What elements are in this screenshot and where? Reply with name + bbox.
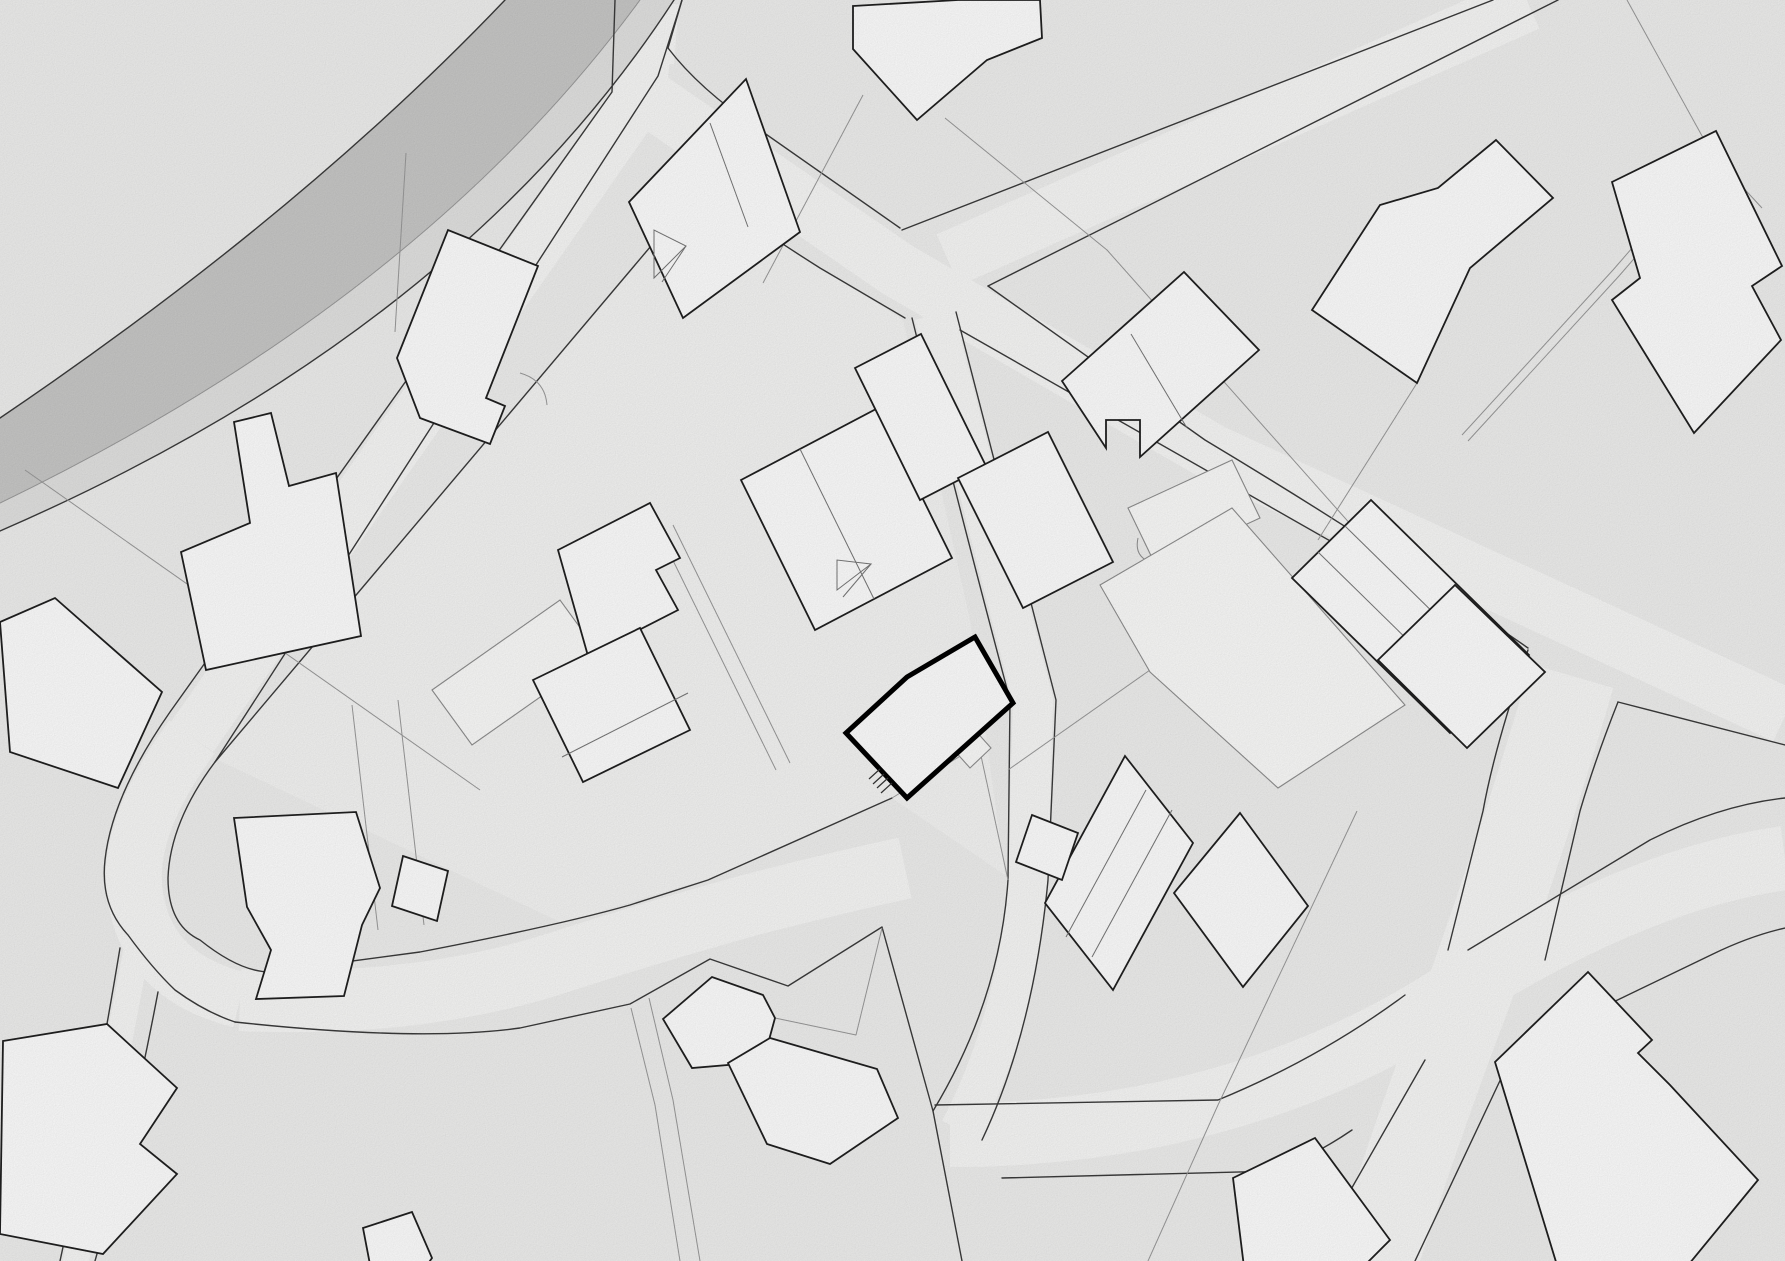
site-plan-canvas [0,0,1785,1261]
paper-grain-overlay [0,0,1785,1261]
site-plan-drawing [0,0,1785,1261]
